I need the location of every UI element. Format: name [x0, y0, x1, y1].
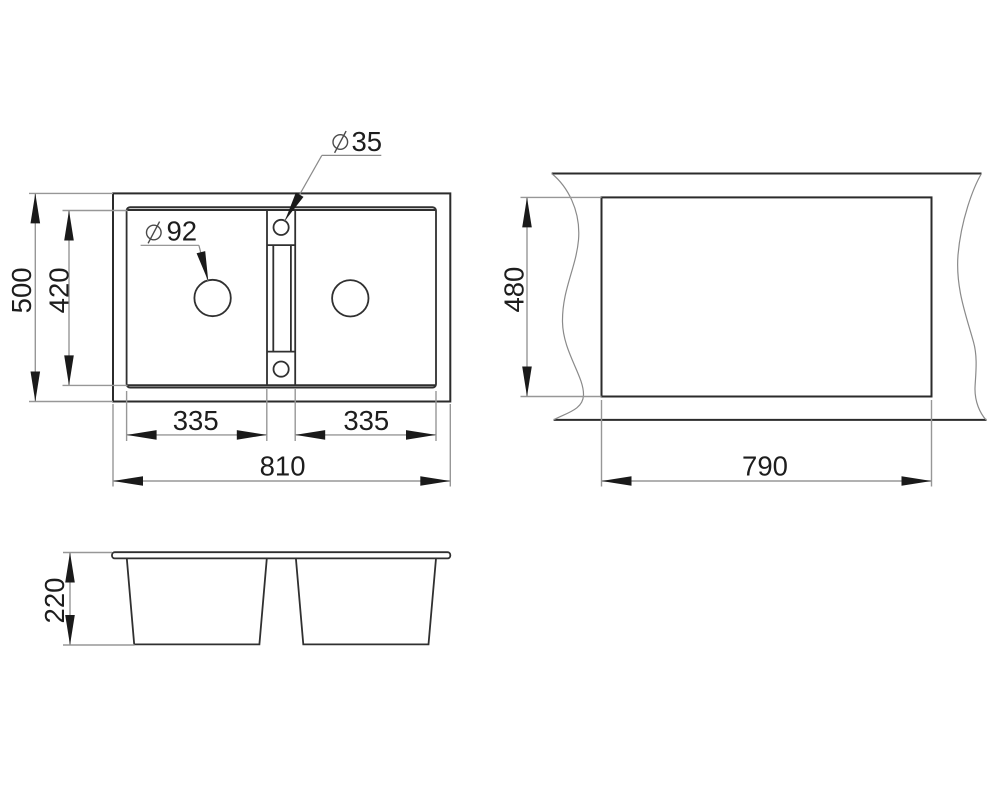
svg-text:335: 335 [343, 405, 389, 436]
svg-text:500: 500 [6, 267, 37, 313]
svg-text:790: 790 [742, 451, 788, 482]
svg-text:810: 810 [260, 451, 306, 482]
svg-text:92: 92 [167, 215, 198, 246]
svg-text:35: 35 [352, 126, 383, 157]
svg-text:335: 335 [173, 405, 219, 436]
svg-text:480: 480 [498, 267, 529, 313]
svg-text:420: 420 [43, 267, 74, 313]
svg-text:220: 220 [39, 578, 70, 624]
